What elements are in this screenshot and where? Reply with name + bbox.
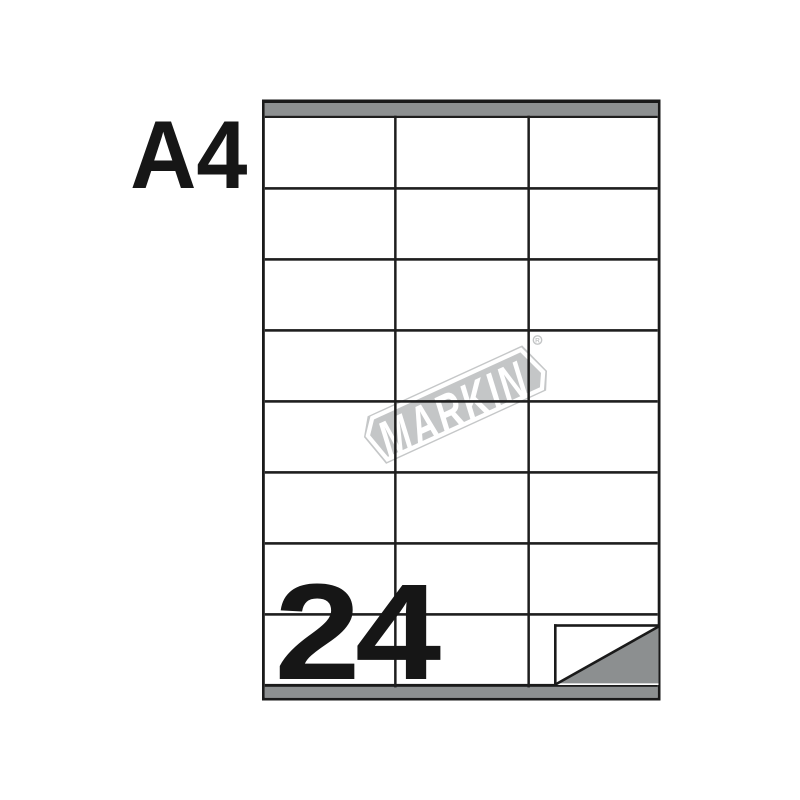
- svg-text:A4: A4: [130, 101, 247, 209]
- svg-text:R: R: [535, 338, 540, 345]
- svg-text:24: 24: [274, 555, 441, 708]
